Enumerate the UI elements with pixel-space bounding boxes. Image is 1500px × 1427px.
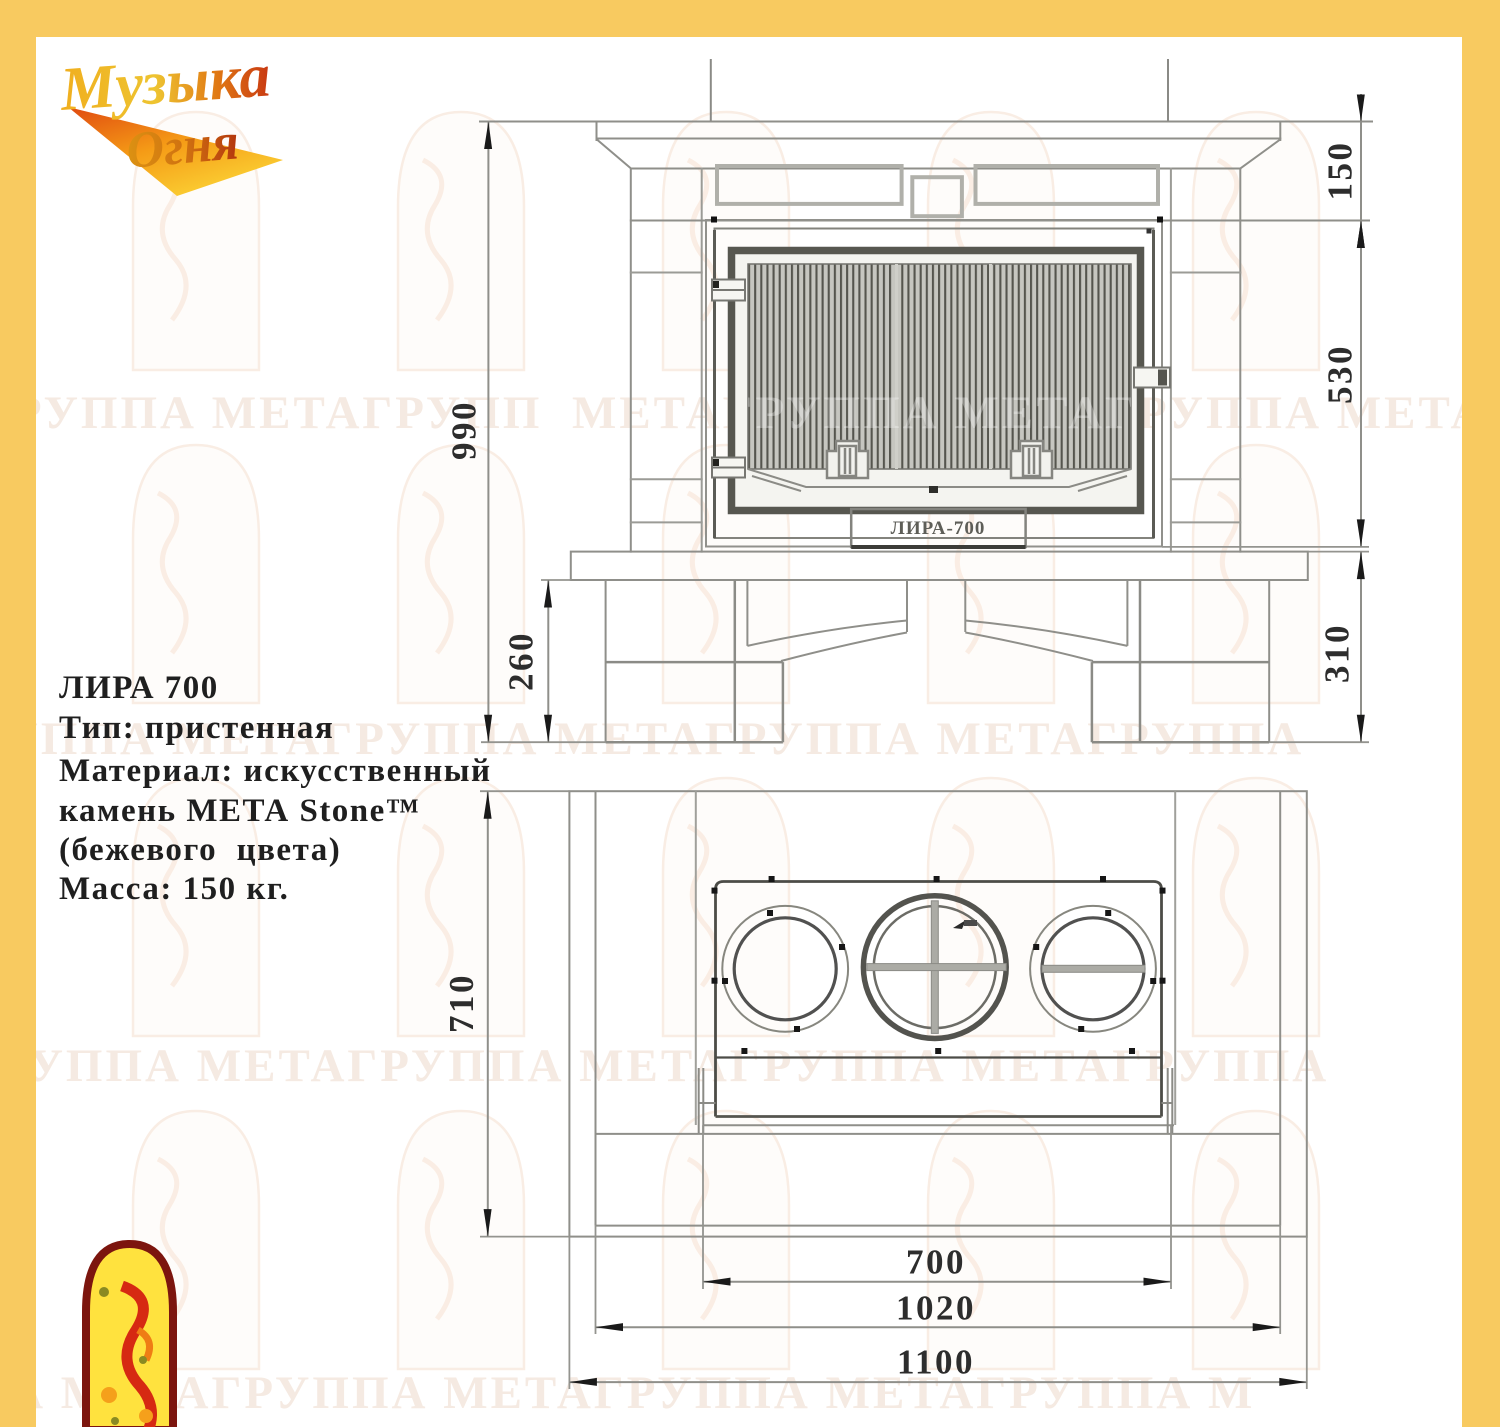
svg-text:Огня: Огня xyxy=(124,113,241,180)
svg-text:камень МЕТА Stone™: камень МЕТА Stone™ xyxy=(59,793,420,829)
svg-text:710: 710 xyxy=(442,973,481,1033)
svg-text:Тип: пристенная: Тип: пристенная xyxy=(59,710,334,746)
svg-text:(бежевого цвета): (бежевого цвета) xyxy=(59,832,341,868)
svg-text:ЛИРА 700: ЛИРА 700 xyxy=(59,670,219,706)
svg-text:ЛИРА-700: ЛИРА-700 xyxy=(891,518,986,539)
svg-text:530: 530 xyxy=(1321,344,1360,404)
svg-text:1020: 1020 xyxy=(896,1289,976,1328)
svg-text:990: 990 xyxy=(445,400,484,460)
svg-text:1100: 1100 xyxy=(897,1343,975,1382)
svg-text:Материал: искусственный: Материал: искусственный xyxy=(59,753,492,789)
svg-text:ГРУППА МЕТАГРУППА МЕТАГРУППА М: ГРУППА МЕТАГРУППА МЕТАГРУППА МЕТАГРУППА xyxy=(0,1040,1329,1092)
svg-text:260: 260 xyxy=(502,631,541,691)
svg-text:700: 700 xyxy=(906,1243,966,1282)
svg-text:150: 150 xyxy=(1321,141,1360,201)
svg-text:Масса: 150 кг.: Масса: 150 кг. xyxy=(59,871,289,907)
svg-text:ННА МЕТАГРУППА МЕТАГРУППА МЕТА: ННА МЕТАГРУППА МЕТАГРУППА МЕТАГРУППА М xyxy=(0,1367,1255,1419)
svg-text:310: 310 xyxy=(1318,623,1357,683)
